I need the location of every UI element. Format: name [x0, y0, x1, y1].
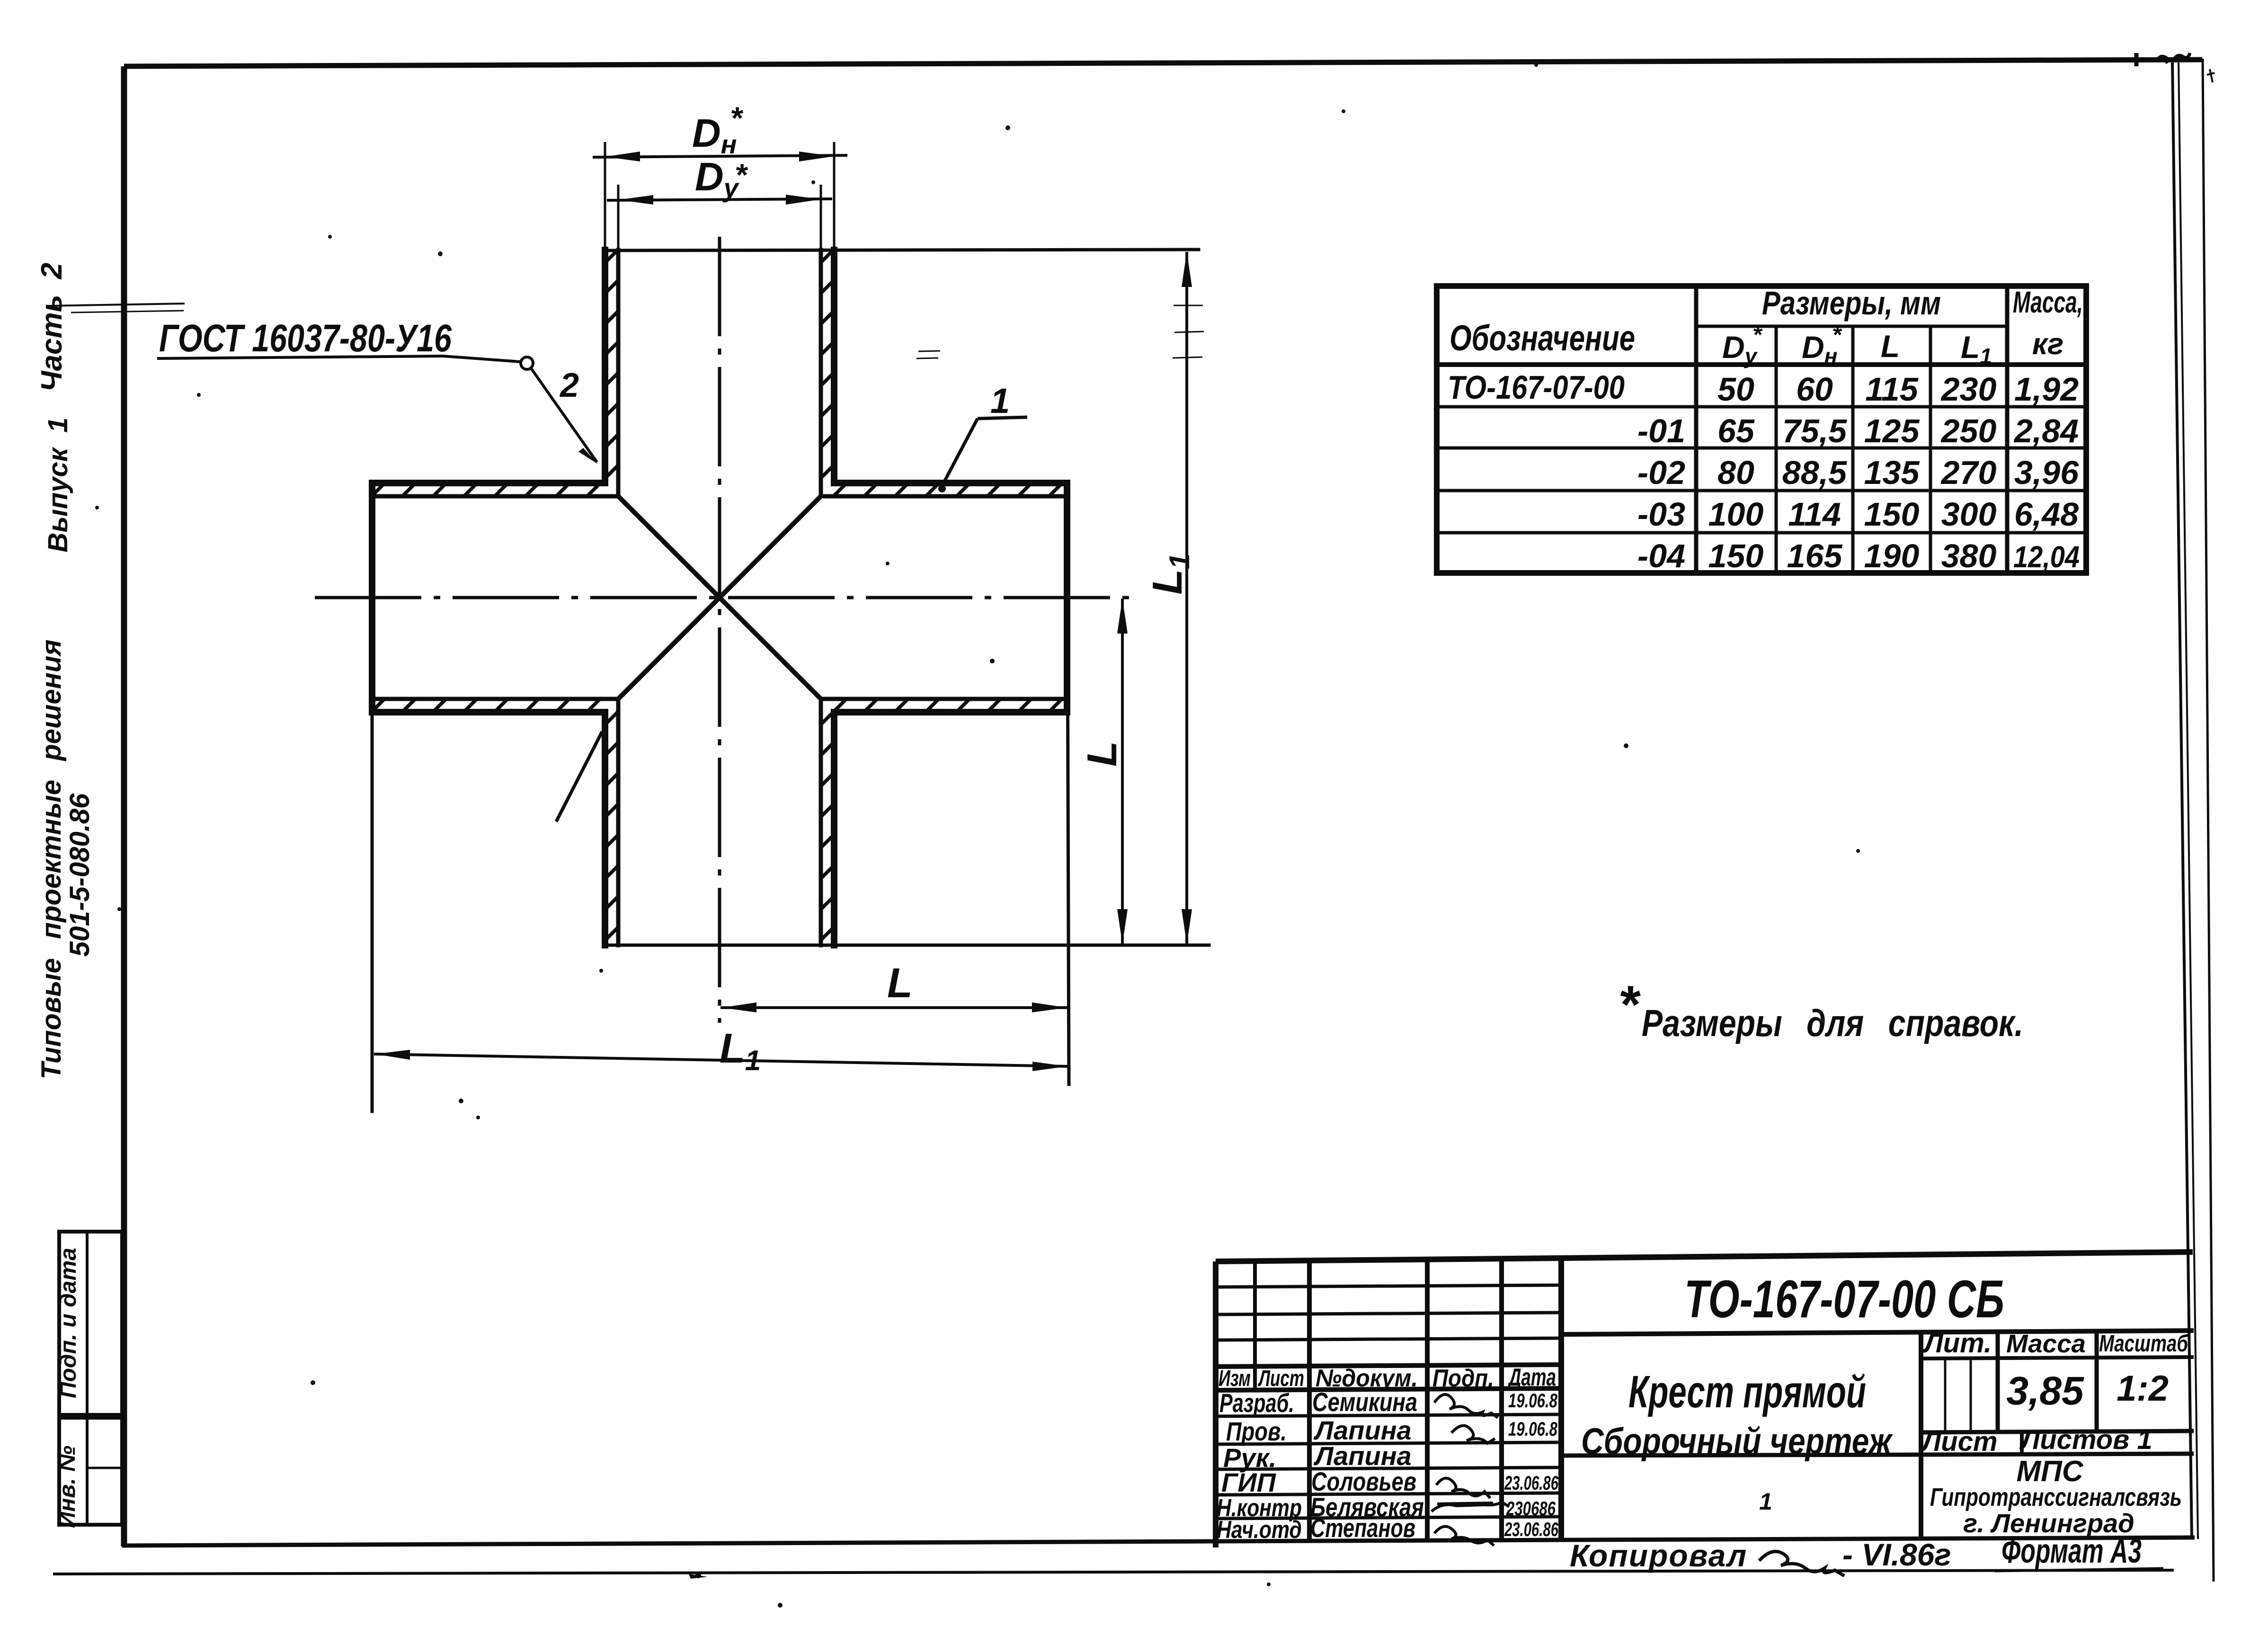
svg-text:23.06.86: 23.06.86 [1504, 1472, 1558, 1494]
svg-text:60: 60 [1796, 371, 1833, 408]
svg-text:Дата: Дата [1507, 1364, 1556, 1391]
svg-text:114: 114 [1788, 496, 1841, 533]
svg-text:Пров.: Пров. [1226, 1416, 1287, 1446]
svg-text:1: 1 [1759, 1488, 1772, 1515]
svg-text:*: * [735, 157, 748, 192]
svg-text:Лист: Лист [1920, 1426, 1997, 1457]
svg-text:75,5: 75,5 [1782, 412, 1847, 449]
svg-text:-02: -02 [1637, 454, 1685, 491]
svg-text:125: 125 [1864, 412, 1920, 449]
svg-text:Разраб.: Разраб. [1219, 1388, 1294, 1418]
svg-text:Подп.: Подп. [1432, 1365, 1494, 1392]
svg-text:250: 250 [1940, 412, 1997, 449]
svg-text:6,48: 6,48 [2014, 496, 2079, 533]
svg-text:380: 380 [1941, 537, 1997, 574]
svg-text:Сборочный чертеж: Сборочный чертеж [1581, 1420, 1893, 1462]
svg-text:2: 2 [559, 367, 579, 404]
svg-text:230: 230 [1940, 371, 1997, 408]
svg-text:3,96: 3,96 [2014, 454, 2079, 491]
svg-text:80: 80 [1717, 454, 1754, 491]
svg-text:88,5: 88,5 [1782, 454, 1847, 491]
svg-text:50: 50 [1717, 371, 1754, 408]
svg-text:190: 190 [1864, 537, 1920, 574]
svg-text:150: 150 [1708, 537, 1764, 574]
svg-text:кг: кг [2032, 327, 2064, 361]
svg-text:ТО-167-07-00 СБ: ТО-167-07-00 СБ [1684, 1269, 2004, 1329]
svg-text:*: * [1618, 975, 1641, 1034]
svg-text:*: * [1832, 322, 1842, 348]
svg-text:Типовые проектные решения: Типовые проектные решения [36, 639, 67, 1079]
svg-text:300: 300 [1941, 496, 1997, 533]
svg-text:19.06.8: 19.06.8 [1508, 1418, 1557, 1440]
svg-text:-04: -04 [1637, 537, 1685, 574]
svg-text:1,92: 1,92 [2014, 371, 2079, 408]
svg-text:Лит.: Лит. [1922, 1328, 1992, 1359]
svg-text:Размеры для справок.: Размеры для справок. [1642, 1002, 2023, 1044]
svg-text:Размеры, мм: Размеры, мм [1762, 285, 1941, 322]
svg-text:Масса,: Масса, [2013, 285, 2083, 319]
svg-text:Копировал: Копировал [1570, 1538, 1747, 1573]
svg-text:19.06.8: 19.06.8 [1508, 1389, 1557, 1412]
svg-text:L: L [1881, 329, 1900, 364]
svg-text:*: * [1752, 322, 1763, 348]
svg-text:- VI.86г: - VI.86г [1842, 1537, 1951, 1572]
svg-text:Крест прямой: Крест прямой [1628, 1367, 1866, 1417]
svg-text:1:2: 1:2 [2117, 1368, 2169, 1409]
svg-text:Выпуск 1: Выпуск 1 [43, 417, 73, 552]
svg-text:Масса: Масса [2006, 1330, 2086, 1358]
svg-text:501-5-080.86: 501-5-080.86 [64, 793, 95, 957]
svg-text:Обозначение: Обозначение [1450, 318, 1635, 358]
svg-text:ГОСТ 16037-80-У16: ГОСТ 16037-80-У16 [159, 317, 452, 360]
svg-text:3,85: 3,85 [2006, 1368, 2084, 1413]
svg-text:65: 65 [1717, 412, 1755, 449]
svg-text:-03: -03 [1637, 496, 1685, 533]
svg-text:Семикина: Семикина [1312, 1387, 1417, 1417]
svg-text:100: 100 [1708, 496, 1764, 533]
svg-text:150: 150 [1864, 496, 1920, 533]
svg-text:Формат А3: Формат А3 [2001, 1532, 2142, 1570]
svg-text:Нач.отд: Нач.отд [1217, 1516, 1302, 1544]
svg-text:165: 165 [1787, 537, 1843, 574]
svg-text:12,04: 12,04 [2013, 540, 2080, 574]
svg-text:2,84: 2,84 [2013, 412, 2079, 449]
svg-text:Степанов: Степанов [1310, 1513, 1415, 1543]
svg-text:*: * [730, 100, 744, 135]
svg-text:1: 1 [990, 381, 1010, 420]
svg-text:L: L [887, 959, 913, 1006]
svg-text:270: 270 [1940, 454, 1997, 491]
svg-text:23.06.86: 23.06.86 [1504, 1518, 1558, 1540]
svg-text:ТО-167-07-00: ТО-167-07-00 [1448, 369, 1625, 406]
svg-text:-01: -01 [1637, 412, 1685, 449]
svg-text:115: 115 [1865, 371, 1919, 408]
svg-text:L: L [1078, 741, 1125, 767]
svg-text:Масштаб: Масштаб [2099, 1330, 2189, 1357]
svg-text:Гипротранссигналсвязь: Гипротранссигналсвязь [1930, 1483, 2182, 1511]
svg-text:230686: 230686 [1506, 1497, 1556, 1520]
svg-text:Листов 1: Листов 1 [2019, 1424, 2152, 1455]
svg-text:135: 135 [1864, 454, 1920, 491]
svg-text:ГИП: ГИП [1221, 1467, 1277, 1497]
svg-text:Часть 2: Часть 2 [36, 263, 68, 392]
